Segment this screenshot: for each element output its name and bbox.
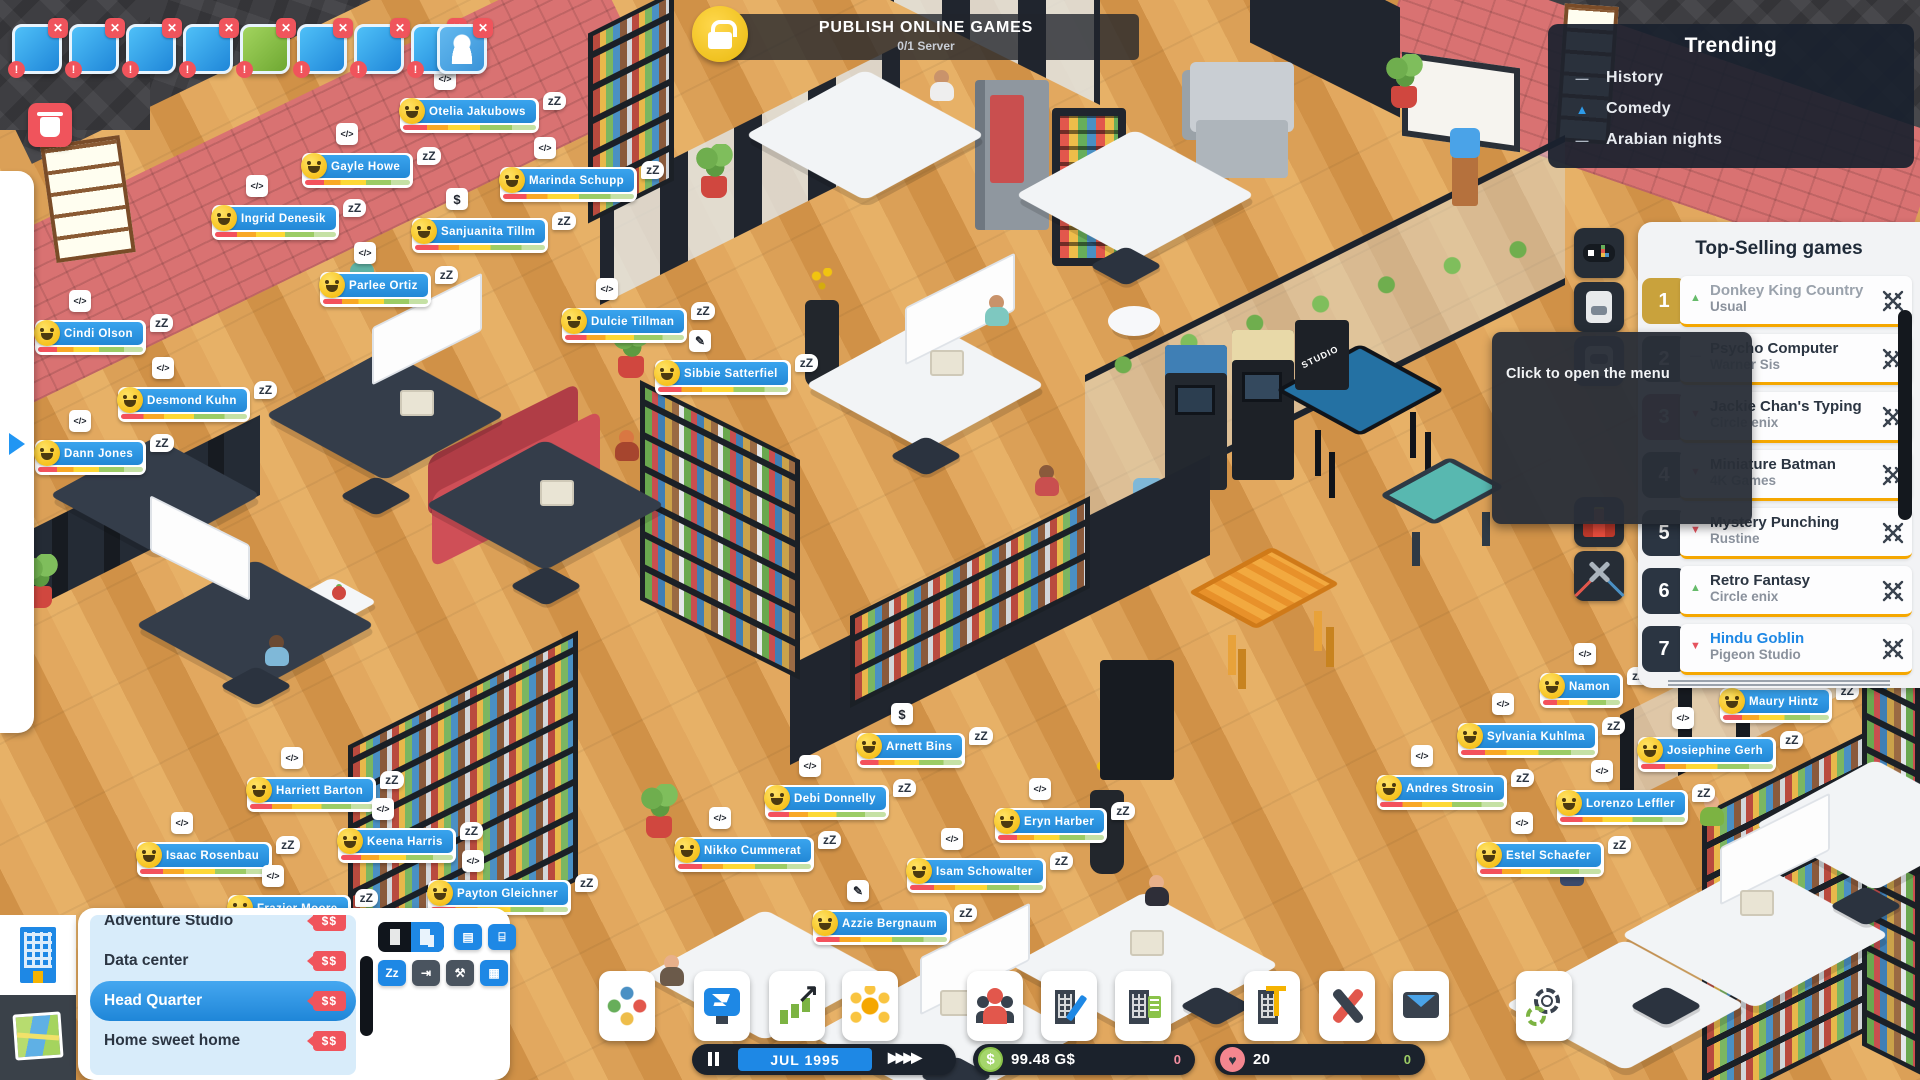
price-badge: $$ — [313, 1031, 346, 1051]
computer — [930, 350, 964, 376]
skill-bar — [998, 835, 1104, 840]
sleep-indicator-icon: zZ — [893, 779, 916, 797]
employee-tag[interactable]: Eryn Harber zZ — [995, 808, 1107, 843]
employee-tag[interactable]: Sanjuanita Tillm zZ — [412, 218, 548, 253]
employee-name: Dulcie Tillman — [591, 316, 674, 328]
skill-bar — [678, 864, 811, 869]
heart-icon: ♥ — [1220, 1047, 1245, 1072]
game-name: Donkey King Country — [1710, 282, 1882, 299]
skill-bar — [1723, 715, 1829, 720]
employee-name: Azzie Bergnaum — [842, 918, 937, 930]
profession-icon — [709, 807, 731, 829]
publish-banner[interactable]: PUBLISH ONLINE GAMES 0/1 Server — [713, 14, 1139, 60]
window-icon — [195, 34, 221, 64]
profession-icon — [372, 798, 394, 820]
employee-tag[interactable]: Ingrid Denesik zZ — [212, 205, 339, 240]
skill-bar — [910, 885, 1043, 890]
mood-emoji-icon — [246, 777, 272, 803]
trending-item: History — [1572, 67, 1914, 89]
buildings-list: Adventure Studio $$ Data center $$ Head … — [90, 915, 356, 1075]
staff-window-button[interactable]: ✕ — [437, 24, 487, 74]
mood-emoji-icon — [319, 272, 345, 298]
close-icon[interactable]: ✕ — [333, 18, 353, 38]
close-icon[interactable]: ✕ — [473, 18, 493, 38]
window-icon — [24, 34, 50, 64]
alert-badge: ! — [179, 61, 196, 78]
employee-tag[interactable]: Keena Harris zZ — [338, 828, 456, 863]
window-icon — [81, 34, 107, 64]
skill-bar — [860, 760, 962, 765]
employee-tag[interactable]: Namon zZ — [1540, 673, 1623, 708]
skill-bar — [816, 937, 947, 942]
building-list-item[interactable]: Head Quarter $$ — [90, 981, 356, 1021]
window-icon — [309, 34, 335, 64]
profession-icon — [69, 290, 91, 312]
single-building-icon[interactable] — [378, 922, 411, 952]
trending-item: Arabian nights — [1572, 129, 1914, 151]
skill-bar — [38, 347, 143, 352]
employee-name: Sanjuanita Tillm — [441, 226, 535, 238]
profession-icon — [262, 865, 284, 887]
mood-emoji-icon — [1539, 673, 1565, 699]
profession-icon — [69, 410, 91, 432]
employee-tag[interactable]: Dann Jones zZ — [35, 440, 146, 475]
employee-name: Arnett Bins — [886, 741, 952, 753]
game-name: Hindu Goblin — [1710, 630, 1882, 647]
skill-bar — [1543, 700, 1620, 705]
trending-label: History — [1606, 69, 1663, 87]
building-list-item[interactable]: Adventure Studio $$ — [90, 915, 356, 941]
trash-button[interactable] — [28, 103, 72, 147]
dock-icon — [702, 986, 742, 1026]
skill-bar — [565, 335, 684, 340]
minimized-window-button[interactable]: ✕ ! — [12, 24, 62, 74]
dock-button[interactable] — [1244, 971, 1300, 1041]
fast-forward-icon[interactable]: ▶▶▶▶ — [888, 1049, 919, 1066]
versus-swords-icon[interactable] — [1880, 636, 1906, 662]
arcade-screen — [1242, 372, 1282, 402]
skill-bar — [768, 812, 886, 817]
buildings-panel: Adventure Studio $$ Data center $$ Head … — [78, 908, 510, 1080]
employee-tag[interactable]: Desmond Kuhn zZ — [118, 387, 250, 422]
dock-button[interactable] — [842, 971, 898, 1041]
computer — [1130, 930, 1164, 956]
tooltip-footer: Click to open the menu — [1506, 364, 1738, 384]
tools-button[interactable]: ⚒ — [446, 960, 474, 986]
employee-name: Debi Donnelly — [794, 793, 876, 805]
buildings-view-button[interactable] — [0, 915, 76, 995]
building-list-item[interactable]: Data center $$ — [90, 941, 356, 981]
sleep-indicator-icon: zZ — [575, 874, 598, 892]
mood-emoji-icon — [499, 167, 525, 193]
employee-tag[interactable]: Andres Strosin zZ — [1377, 775, 1507, 810]
dollar-icon: $ — [978, 1047, 1003, 1072]
mood-emoji-icon — [1719, 688, 1745, 714]
profession-icon — [1029, 778, 1051, 800]
trending-item: Comedy — [1572, 98, 1914, 120]
map-view-button[interactable] — [0, 995, 76, 1080]
employee-name: Andres Strosin — [1406, 783, 1494, 795]
dock-icon — [1252, 986, 1292, 1026]
minimized-window-button[interactable]: ✕ ! — [297, 24, 347, 74]
profession-icon — [534, 137, 556, 159]
close-icon[interactable]: ✕ — [219, 18, 239, 38]
expand-arrow-icon[interactable] — [9, 433, 25, 455]
employee-tag[interactable]: Parlee Ortiz zZ — [320, 272, 431, 307]
arcade-screen — [1175, 385, 1215, 415]
desk-button[interactable]: ⌸ — [488, 924, 516, 950]
game-screen: STUDIO — [0, 0, 1920, 1080]
mood-emoji-icon — [1476, 842, 1502, 868]
sleep-indicator-icon: zZ — [1602, 717, 1625, 735]
dock-icon — [1049, 986, 1089, 1026]
employee-tag[interactable]: Isaac Rosenbau zZ — [137, 842, 272, 877]
dock-icon — [1401, 986, 1441, 1026]
fans-delta: 0 — [1404, 1052, 1411, 1067]
minimized-window-button[interactable]: ✕ ! — [183, 24, 233, 74]
sleep-indicator-icon: zZ — [460, 822, 483, 840]
price-badge: $$ — [313, 951, 346, 971]
mood-emoji-icon — [427, 880, 453, 906]
fans-bar: ♥ 20 0 — [1215, 1044, 1425, 1075]
skill-bar — [1641, 764, 1773, 769]
water-bottle — [1450, 128, 1480, 158]
employee-tag[interactable]: Sibbie Satterfiel zZ — [655, 360, 791, 395]
employee-name: Namon — [1569, 681, 1610, 693]
publish-banner-subtitle: 0/1 Server — [713, 39, 1139, 53]
sleep-indicator-icon: zZ — [818, 831, 841, 849]
furniture-button[interactable]: ▤ — [454, 924, 482, 950]
mood-emoji-icon — [1556, 790, 1582, 816]
trend-arrow-icon — [1690, 640, 1701, 652]
building-name: Adventure Studio — [104, 915, 313, 930]
employee-name: Otelia Jakubows — [429, 106, 526, 118]
top-selling-row[interactable]: 1 Donkey King Country Usual — [1642, 276, 1912, 327]
blueprint-button[interactable]: ▦ — [480, 960, 508, 986]
mood-emoji-icon — [411, 218, 437, 244]
trending-label: Arabian nights — [1606, 131, 1722, 149]
dock-icon — [975, 986, 1015, 1026]
building-toggle[interactable] — [378, 922, 444, 952]
skill-bar — [1380, 802, 1504, 807]
profession-icon — [446, 188, 468, 210]
profession-icon — [336, 123, 358, 145]
building-name: Home sweet home — [104, 1032, 313, 1050]
employee-tag[interactable]: Otelia Jakubows zZ — [400, 98, 539, 133]
dock-icon — [1123, 986, 1163, 1026]
profession-icon — [171, 812, 193, 834]
skill-bar — [305, 180, 410, 185]
map-icon — [12, 1011, 63, 1060]
sleep-indicator-icon: zZ — [150, 434, 173, 452]
mood-emoji-icon — [994, 808, 1020, 834]
yellow-flowers — [808, 268, 836, 308]
mood-emoji-icon — [1376, 775, 1402, 801]
dock-button[interactable] — [1319, 971, 1375, 1041]
employee-name: Keena Harris — [367, 836, 443, 848]
sleep-indicator-icon: zZ — [435, 266, 458, 284]
pause-icon[interactable] — [708, 1052, 712, 1066]
window-icon — [366, 34, 392, 64]
employee-name: Payton Gleichner — [457, 888, 558, 900]
trending-panel: Trending History Comedy Arabian nights — [1548, 24, 1914, 168]
sleep-indicator-icon: zZ — [417, 147, 440, 165]
dock-icon — [777, 986, 817, 1026]
side-tab-button[interactable] — [1574, 282, 1624, 332]
profession-icon — [1492, 693, 1514, 715]
skill-bar — [140, 869, 269, 874]
employee-name: Sibbie Satterfiel — [684, 368, 778, 380]
side-tab-button[interactable] — [1574, 228, 1624, 278]
employee-tag[interactable]: Lorenzo Leffler zZ — [1557, 790, 1688, 825]
alert-badge: ! — [8, 61, 25, 78]
publisher-name: Pigeon Studio — [1710, 647, 1882, 662]
skill-bar — [38, 467, 143, 472]
trend-arrow-icon — [1572, 133, 1592, 148]
vending-stripe — [990, 95, 1024, 183]
versus-swords-icon[interactable] — [1880, 520, 1906, 546]
alert-badge: ! — [236, 61, 253, 78]
game-date: JUL 1995 — [738, 1048, 872, 1071]
employee-tag[interactable]: Sylvania Kuhlma zZ — [1458, 723, 1598, 758]
skill-bar — [503, 194, 634, 199]
sleep-indicator-icon: zZ — [1511, 769, 1534, 787]
skill-bar — [1560, 817, 1685, 822]
employee-tag[interactable]: Azzie Bergnaum zZ — [813, 910, 950, 945]
profession-icon — [941, 828, 963, 850]
building-name: Head Quarter — [104, 992, 313, 1010]
scrollbar[interactable] — [360, 956, 373, 1036]
sleep-indicator-icon: zZ — [380, 771, 403, 789]
employee-tag[interactable]: Gayle Howe zZ — [302, 153, 413, 188]
employee-name: Josiephine Gerh — [1667, 745, 1763, 757]
sleep-indicator-icon: zZ — [254, 381, 277, 399]
publisher-name: Circle enix — [1710, 589, 1882, 604]
employee-name: Nikko Cummerat — [704, 845, 801, 857]
minimized-window-button[interactable]: ✕ ! — [126, 24, 176, 74]
mood-emoji-icon — [211, 205, 237, 231]
dock-button[interactable] — [1393, 971, 1449, 1041]
dock-icon — [1524, 986, 1564, 1026]
collapsed-side-panel[interactable] — [0, 171, 34, 733]
profession-icon — [847, 880, 869, 902]
potted-plant — [695, 150, 735, 200]
mood-emoji-icon — [906, 858, 932, 884]
employee-name: Isam Schowalter — [936, 866, 1033, 878]
employee-name: Cindi Olson — [64, 328, 133, 340]
profession-icon — [152, 357, 174, 379]
employee-tag[interactable]: Estel Schaefer zZ — [1477, 842, 1604, 877]
dock-button[interactable] — [599, 971, 655, 1041]
side-tab-button[interactable] — [1574, 551, 1624, 601]
alert-badge: ! — [122, 61, 139, 78]
fans-value: 20 — [1253, 1051, 1270, 1068]
top-selling-title: Top-Selling games — [1638, 238, 1920, 260]
sleep-indicator-icon: zZ — [795, 354, 818, 372]
dock-icon — [1327, 986, 1367, 1026]
employee-tag[interactable]: Josiephine Gerh zZ — [1638, 737, 1776, 772]
skill-bar — [403, 125, 536, 130]
employee-name: Eryn Harber — [1024, 816, 1094, 828]
sleep-indicator-icon: zZ — [1608, 836, 1631, 854]
profession-icon — [1672, 707, 1694, 729]
profession-icon — [689, 330, 711, 352]
employee-name: Gayle Howe — [331, 161, 400, 173]
employee-name: Isaac Rosenbau — [166, 850, 259, 862]
employee-name: Harriett Barton — [276, 785, 363, 797]
employee-tag[interactable]: Cindi Olson zZ — [35, 320, 146, 355]
publisher-name: Usual — [1710, 299, 1882, 314]
computer — [400, 390, 434, 416]
potted-plant — [640, 790, 680, 840]
skill-bar — [658, 387, 788, 392]
employee-tag[interactable]: Debi Donnelly zZ — [765, 785, 889, 820]
top-selling-row[interactable]: 6 Retro Fantasy Circle enix — [1642, 566, 1912, 617]
sleep-indicator-icon: zZ — [641, 161, 664, 179]
close-icon[interactable]: ✕ — [390, 18, 410, 38]
money-value: 99.48 G$ — [1011, 1051, 1075, 1068]
game-tooltip: Click to open the menu — [1492, 332, 1752, 524]
profession-icon — [596, 278, 618, 300]
employee-tag[interactable]: Isam Schowalter zZ — [907, 858, 1046, 893]
close-icon[interactable]: ✕ — [162, 18, 182, 38]
price-badge: $$ — [313, 915, 346, 931]
price-badge: $$ — [313, 991, 346, 1011]
skill-bar — [215, 232, 336, 237]
sleep-indicator-icon: zZ — [552, 212, 575, 230]
sleep-indicator-icon: zZ — [543, 92, 566, 110]
mood-emoji-icon — [561, 308, 587, 334]
mood-emoji-icon — [764, 785, 790, 811]
publish-banner-title: PUBLISH ONLINE GAMES — [713, 19, 1139, 37]
mood-emoji-icon — [1637, 737, 1663, 763]
employee-tag[interactable]: Marinda Schupp zZ — [500, 167, 637, 202]
dock-button[interactable] — [1115, 971, 1171, 1041]
close-icon[interactable]: ✕ — [276, 18, 296, 38]
mood-emoji-icon — [654, 360, 680, 386]
employee-name: Dann Jones — [64, 448, 133, 460]
dock-button[interactable] — [1041, 971, 1097, 1041]
skill-bar — [250, 804, 373, 809]
horizontal-scrollbar[interactable] — [1668, 680, 1890, 682]
building-name: Data center — [104, 952, 313, 970]
employee-name: Estel Schaefer — [1506, 850, 1591, 862]
employee-tag[interactable]: Dulcie Tillman zZ — [562, 308, 687, 343]
trending-label: Comedy — [1606, 100, 1671, 118]
sleep-indicator-icon: zZ — [355, 889, 378, 907]
skill-bar — [1480, 869, 1601, 874]
mood-emoji-icon — [856, 733, 882, 759]
employee-tag[interactable]: Harriett Barton zZ — [247, 777, 376, 812]
profession-icon — [1511, 812, 1533, 834]
mood-emoji-icon — [399, 98, 425, 124]
potted-plant — [1385, 60, 1425, 110]
skill-bar — [415, 245, 545, 250]
game-name: Retro Fantasy — [1710, 572, 1882, 589]
employee-tag[interactable]: Maury Hintz zZ — [1720, 688, 1832, 723]
close-icon[interactable]: ✕ — [105, 18, 125, 38]
trend-arrow-icon — [1690, 582, 1701, 594]
employee-name: Sylvania Kuhlma — [1487, 731, 1585, 743]
skill-bar — [323, 299, 428, 304]
move-out-button[interactable]: ⇥ — [412, 960, 440, 986]
publisher-name: Rustine — [1710, 531, 1882, 546]
versus-swords-icon[interactable] — [1880, 578, 1906, 604]
top-selling-row[interactable]: 7 Hindu Goblin Pigeon Studio — [1642, 624, 1912, 675]
mood-emoji-icon — [34, 320, 60, 346]
dock-button[interactable] — [1516, 971, 1572, 1041]
profession-icon — [1411, 745, 1433, 767]
dock-button[interactable] — [967, 971, 1023, 1041]
minimized-window-button[interactable]: ✕ ! — [240, 24, 290, 74]
employee-tag[interactable]: Arnett Bins zZ — [857, 733, 965, 768]
minimized-window-button[interactable]: ✕ ! — [69, 24, 119, 74]
mood-emoji-icon — [812, 910, 838, 936]
mood-emoji-icon — [117, 387, 143, 413]
skill-bar — [341, 855, 453, 860]
alert-badge: ! — [407, 61, 424, 78]
sleep-indicator-icon: zZ — [343, 199, 366, 217]
employee-name: Lorenzo Leffler — [1586, 798, 1675, 810]
window-icon — [138, 34, 164, 64]
employee-name: Ingrid Denesik — [241, 213, 326, 225]
computer — [540, 480, 574, 506]
trending-title: Trending — [1548, 34, 1914, 58]
multi-building-icon[interactable] — [411, 922, 444, 952]
sleep-indicator-icon: zZ — [691, 302, 714, 320]
trend-arrow-icon — [1690, 292, 1701, 304]
window — [40, 135, 136, 263]
money-delta: 0 — [1174, 1052, 1181, 1067]
window-icon — [252, 34, 278, 64]
money-bar: $ 99.48 G$ 0 — [973, 1044, 1195, 1075]
mood-emoji-icon — [337, 828, 363, 854]
sleep-indicator-icon: zZ — [276, 836, 299, 854]
profession-icon — [799, 755, 821, 777]
time-controls[interactable]: JUL 1995 ▶▶▶▶ — [692, 1044, 956, 1075]
alert-badge: ! — [350, 61, 367, 78]
employee-name: Marinda Schupp — [529, 175, 624, 187]
mood-emoji-icon — [34, 440, 60, 466]
dock-button[interactable] — [769, 971, 825, 1041]
close-icon[interactable]: ✕ — [48, 18, 68, 38]
sleep-button[interactable]: Zz — [378, 960, 406, 986]
computer — [1740, 890, 1774, 916]
dock-icon — [850, 986, 890, 1026]
trend-arrow-icon — [1572, 102, 1592, 117]
scrollbar[interactable] — [1898, 310, 1912, 520]
alert-badge: ! — [293, 61, 310, 78]
sleep-indicator-icon: zZ — [1780, 731, 1803, 749]
skill-bar — [1461, 750, 1595, 755]
sleep-indicator-icon: zZ — [969, 727, 992, 745]
avatar-icon — [449, 34, 475, 64]
building-list-item[interactable]: Home sweet home $$ — [90, 1021, 356, 1061]
trend-arrow-icon — [1690, 524, 1701, 536]
profession-icon — [246, 175, 268, 197]
minimized-window-button[interactable]: ✕ ! — [354, 24, 404, 74]
profession-icon — [891, 703, 913, 725]
skill-bar — [121, 414, 247, 419]
dock-button[interactable] — [694, 971, 750, 1041]
profession-icon — [1574, 643, 1596, 665]
profession-icon — [462, 850, 484, 872]
foosball-legs — [1228, 635, 1236, 675]
water-cooler — [1452, 150, 1478, 206]
employee-tag[interactable]: Nikko Cummerat zZ — [675, 837, 814, 872]
employee-name: Desmond Kuhn — [147, 395, 237, 407]
sleep-indicator-icon: zZ — [1111, 802, 1134, 820]
